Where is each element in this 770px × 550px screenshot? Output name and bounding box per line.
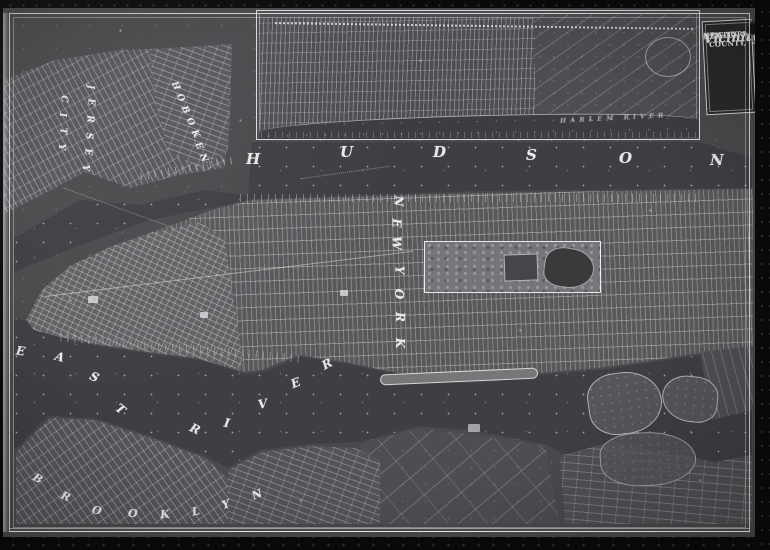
map-border-bottom-band: [9, 524, 750, 532]
map-border-inner: [13, 17, 746, 528]
dust-specks: [0, 0, 1, 1]
film-edge-right: [755, 0, 770, 550]
film-edge-left: [0, 0, 3, 550]
sheet-left-edge-highlight: [3, 13, 9, 532]
photographic-map-negative: NEW-YORK CITY COUNTY, AND Vicinity HUDSO…: [0, 0, 770, 550]
film-edge-bottom: [0, 537, 770, 550]
film-edge-top: [0, 0, 770, 8]
